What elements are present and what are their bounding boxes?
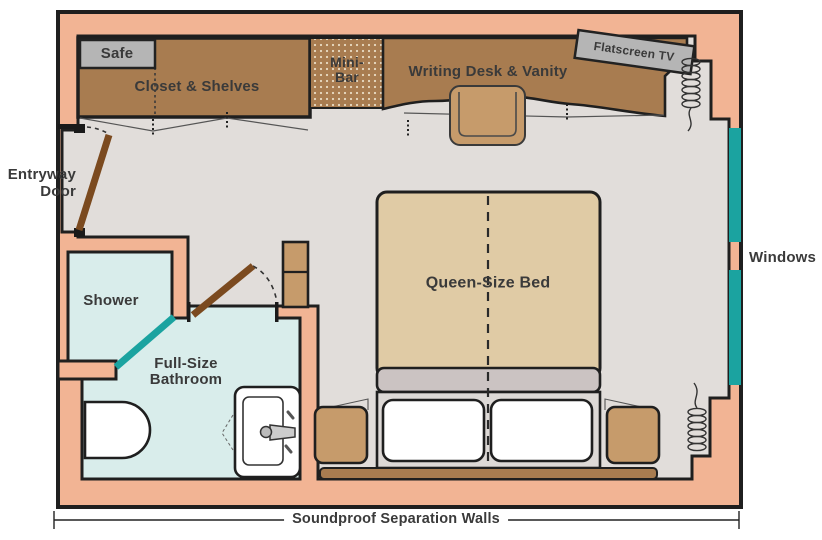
closet-label: Closet & Shelves xyxy=(135,79,260,95)
desk-label: Writing Desk & Vanity xyxy=(409,64,568,80)
shower-label: Shower xyxy=(83,293,138,309)
entryway-label-line2: Door xyxy=(4,183,76,200)
window-strip-upper xyxy=(729,128,741,242)
sink-faucet xyxy=(270,425,295,440)
minibar-label-line1: Mini- xyxy=(330,55,364,70)
bathroom-label-line2: Bathroom xyxy=(150,372,222,388)
headboard xyxy=(320,468,657,479)
nightstand-right xyxy=(607,407,659,463)
bathroom-label-line1: Full-Size xyxy=(150,356,222,372)
entry-jamb-notch xyxy=(74,124,85,133)
soundproof-label: Soundproof Separation Walls xyxy=(284,512,508,528)
sink-faucet-base xyxy=(261,427,272,438)
bathdoor-jamb-left xyxy=(187,302,191,322)
floorplan-canvas: Safe Closet & Shelves Mini- Bar Writing … xyxy=(0,0,822,540)
windows-label: Windows xyxy=(749,250,816,266)
bathroom-label: Full-Size Bathroom xyxy=(150,356,222,388)
window-strip-lower xyxy=(729,270,741,385)
shower-wall-stub xyxy=(58,361,116,379)
pillow-right xyxy=(491,400,592,461)
bathdoor-jamb-right xyxy=(275,302,279,322)
floorplan-svg xyxy=(0,0,822,540)
toilet xyxy=(85,402,150,458)
bath-cabinet xyxy=(283,242,308,307)
entryway-door-label: Entryway Door xyxy=(4,166,76,200)
entryway-label-line1: Entryway xyxy=(4,166,76,183)
minibar-label-line2: Bar xyxy=(330,70,364,85)
bed-label: Queen-Size Bed xyxy=(426,274,551,291)
minibar-label: Mini- Bar xyxy=(330,55,364,85)
safe-label: Safe xyxy=(101,46,134,62)
nightstand-left xyxy=(315,407,367,463)
pillow-left xyxy=(383,400,484,461)
